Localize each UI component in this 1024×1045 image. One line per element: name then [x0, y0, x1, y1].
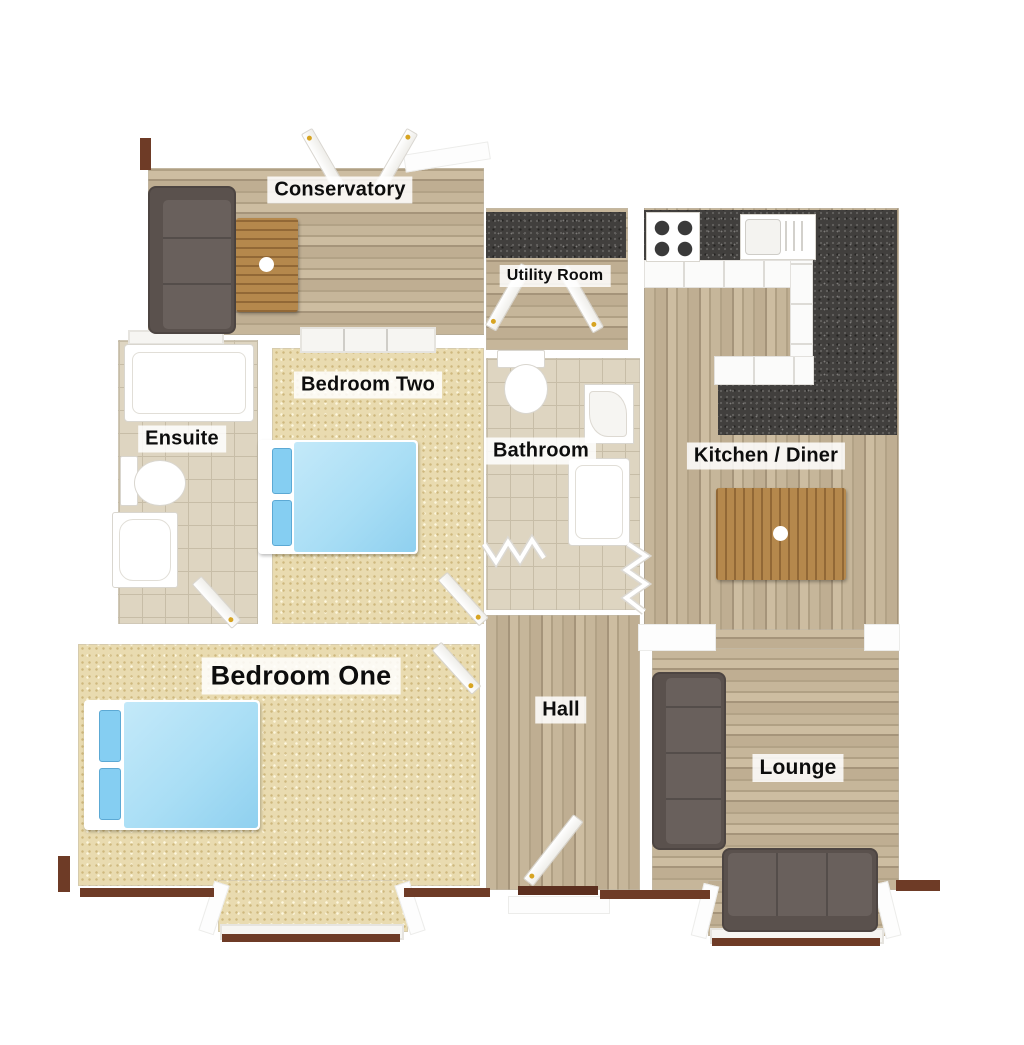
room-label-utility-room: Utility Room [500, 265, 611, 287]
wall-base-top-left [140, 138, 151, 170]
wall-base-bottom-right [600, 890, 710, 899]
bathroom-toilet-bowl [504, 364, 548, 414]
ensuite-shower [112, 512, 178, 588]
bedroom-one-bed [84, 700, 260, 830]
conservatory-sofa [148, 186, 236, 334]
hob [646, 212, 700, 262]
kitchen-worktop-peninsula [718, 382, 897, 435]
hall-floor [486, 615, 640, 890]
bedroom-two-bed [258, 440, 418, 554]
room-label-hall: Hall [535, 697, 586, 724]
room-label-bathroom: Bathroom [486, 438, 596, 465]
porch-step [508, 896, 610, 914]
room-label-ensuite: Ensuite [138, 426, 226, 453]
sink-drainer [785, 221, 809, 251]
dining-table [716, 488, 846, 580]
bathroom-bath [568, 458, 630, 546]
kitchen-cabinets-peninsula [714, 356, 814, 385]
wall-base-left-corner [58, 856, 70, 892]
lounge-bay-sofa [722, 848, 878, 932]
room-label-lounge: Lounge [752, 754, 843, 782]
room-label-conservatory: Conservatory [267, 177, 412, 204]
kitchen-lounge-wall-right [864, 624, 900, 651]
hall-kitchen-bifold-door [620, 542, 652, 618]
kitchen-lounge-wall-left [638, 624, 716, 651]
basin-bowl [589, 391, 627, 437]
room-label-bedroom-one: Bedroom One [202, 658, 401, 695]
kitchen-sink [740, 214, 816, 260]
wall-base-bottom-left [80, 888, 214, 897]
bedroom-two-window [300, 327, 436, 353]
ensuite-toilet-bowl [134, 460, 186, 506]
ensuite-bath [124, 344, 254, 422]
room-label-kitchen-diner: Kitchen / Diner [687, 443, 845, 470]
sink-bowl [745, 219, 781, 255]
floorplan-canvas: Conservatory Utility Room Bedroom Two En… [0, 0, 1024, 1045]
front-door-threshold [518, 886, 598, 895]
lounge-sofa [652, 672, 726, 850]
wall-base-bay-lounge [712, 938, 880, 946]
room-label-bedroom-two: Bedroom Two [294, 372, 442, 399]
coffee-table [236, 218, 298, 312]
utility-worktop [486, 212, 626, 258]
bathroom-corner-basin [584, 384, 634, 444]
wall-base-bay-one [222, 934, 400, 942]
bathroom-bifold-door [482, 534, 548, 574]
kitchen-cabinets-top [644, 260, 796, 288]
wall-base-bottom-mid [404, 888, 490, 897]
wall-base-right-corner [896, 880, 940, 891]
